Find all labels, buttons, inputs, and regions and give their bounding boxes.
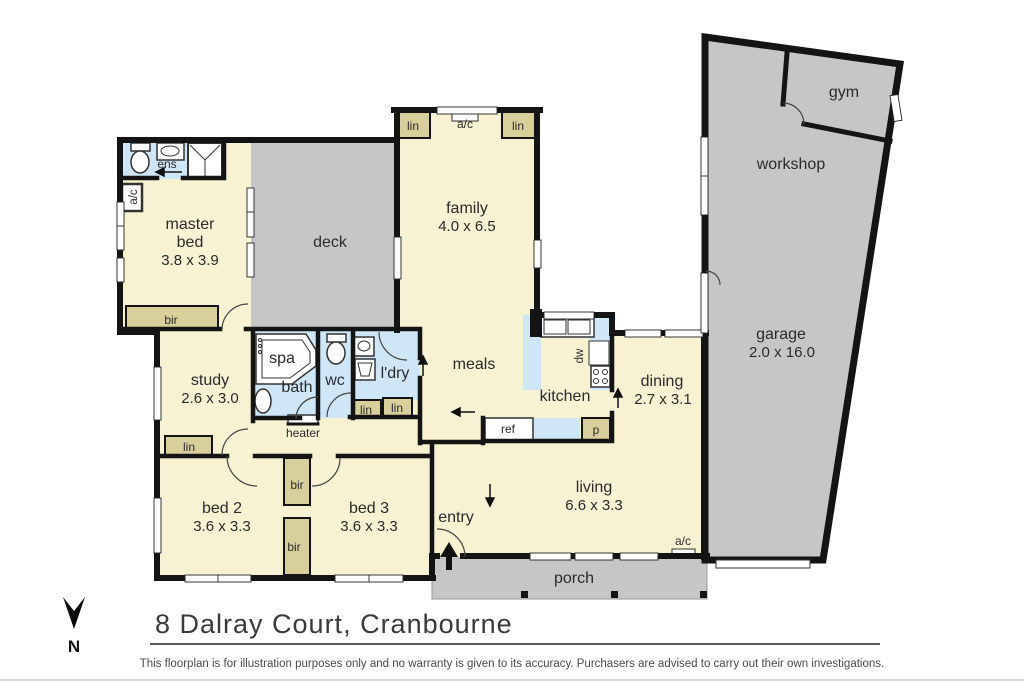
label-heater: heater — [286, 426, 320, 440]
window — [437, 107, 497, 114]
kitchen-stove — [591, 366, 610, 387]
window — [625, 330, 661, 337]
kitchen-bench-bottom — [533, 418, 580, 440]
room-label-wc: wc — [324, 372, 345, 389]
room-label-gym: gym — [829, 84, 859, 101]
window — [247, 188, 254, 237]
room-dims-bed2: 3.6 x 3.3 — [193, 518, 251, 535]
window — [701, 273, 708, 333]
bath-basin — [255, 389, 271, 413]
floorplan-page: ens master bed 3.8 x 3.9 a/c bir deck li… — [0, 0, 1024, 683]
label-lin-study: lin — [183, 440, 195, 454]
north-arrow-icon — [63, 597, 85, 629]
room-label-living: living — [576, 479, 612, 496]
ldry-basin-bowl — [358, 341, 370, 351]
disclaimer: This floorplan is for illustration purpo… — [140, 658, 884, 670]
kitchen-burner — [594, 379, 599, 384]
kitchen-dishwasher — [589, 341, 609, 365]
window — [394, 237, 401, 279]
kitchen-sink-bowl-left — [544, 320, 566, 334]
room-label-spa: spa — [269, 350, 295, 367]
room-label-bed3: bed 3 — [349, 500, 389, 517]
label-bir-bottom: bir — [287, 540, 300, 554]
room-dims-dining: 2.7 x 3.1 — [634, 391, 692, 408]
window — [247, 243, 254, 277]
room-label-dining: dining — [641, 373, 684, 390]
room-dims-garage: 2.0 x 16.0 — [749, 344, 815, 361]
window — [154, 367, 161, 420]
room-label-workshop: workshop — [756, 156, 826, 173]
bath-spa-jet — [259, 345, 262, 348]
room-label-entry: entry — [438, 509, 474, 526]
ens-toilet-tank — [131, 143, 150, 151]
room-dims-living: 6.6 x 3.3 — [565, 497, 623, 514]
room-label-family: family — [446, 200, 488, 217]
garage-door — [716, 560, 810, 568]
window — [575, 553, 613, 560]
porch-post — [611, 591, 618, 598]
room-label-master-2: bed — [177, 234, 204, 251]
room-label-ldry: l'dry — [381, 365, 410, 382]
kitchen-sink-bowl-right — [568, 320, 590, 334]
floorplan: ens master bed 3.8 x 3.9 a/c bir deck li… — [0, 0, 1024, 683]
bath-spa-jet — [259, 339, 262, 342]
window — [117, 258, 124, 282]
window — [534, 240, 541, 268]
north-label: N — [68, 637, 80, 656]
porch-post — [521, 591, 528, 598]
room-label-bed2: bed 2 — [202, 500, 242, 517]
label-lin-family-right: lin — [512, 119, 524, 133]
kitchen-burner — [603, 370, 608, 375]
window — [665, 330, 703, 337]
room-label-study: study — [191, 372, 229, 389]
footer: N 8 Dalray Court, Cranbourne This floorp… — [0, 597, 1024, 680]
window — [154, 498, 161, 553]
label-bir-master: bir — [164, 313, 177, 327]
room-dims-study: 2.6 x 3.0 — [181, 390, 239, 407]
ldry-trough — [355, 359, 375, 380]
room-dims-bed3: 3.6 x 3.3 — [340, 518, 398, 535]
label-dw: dw — [574, 348, 586, 363]
kitchen-corner-block — [530, 309, 542, 337]
kitchen-burner — [594, 370, 599, 375]
room-label-porch: porch — [554, 570, 594, 587]
ens-basin-bowl — [161, 146, 179, 156]
window — [544, 312, 594, 319]
page-title: 8 Dalray Court, Cranbourne — [155, 609, 513, 639]
label-ref: ref — [501, 422, 516, 436]
room-label-bath: bath — [281, 379, 312, 396]
room-label-master-1: master — [166, 216, 216, 233]
porch-post — [700, 591, 707, 598]
kitchen-burner — [603, 379, 608, 384]
window — [530, 553, 571, 560]
ens-toilet — [131, 151, 149, 173]
room-label-deck: deck — [313, 234, 348, 251]
wc-toilet-tank — [327, 334, 346, 342]
label-lin-family-left: lin — [407, 119, 419, 133]
label-lin-ldry-b: lin — [391, 401, 403, 415]
bath-spa-jet — [259, 351, 262, 354]
room-label-meals: meals — [453, 356, 496, 373]
label-ac-living: a/c — [675, 534, 691, 548]
label-pantry: p — [593, 423, 600, 437]
wc-toilet — [327, 342, 345, 364]
room-label-garage: garage — [756, 326, 806, 343]
room-dims-master: 3.8 x 3.9 — [161, 252, 219, 269]
room-dims-family: 4.0 x 6.5 — [438, 218, 496, 235]
label-bir-top: bir — [290, 478, 303, 492]
label-ac-master: a/c — [128, 189, 140, 205]
window — [620, 553, 658, 560]
room-label-kitchen: kitchen — [540, 388, 591, 405]
label-lin-ldry-a: lin — [360, 403, 372, 417]
room-label-ens: ens — [157, 157, 176, 171]
label-ac-family: a/c — [457, 117, 473, 131]
